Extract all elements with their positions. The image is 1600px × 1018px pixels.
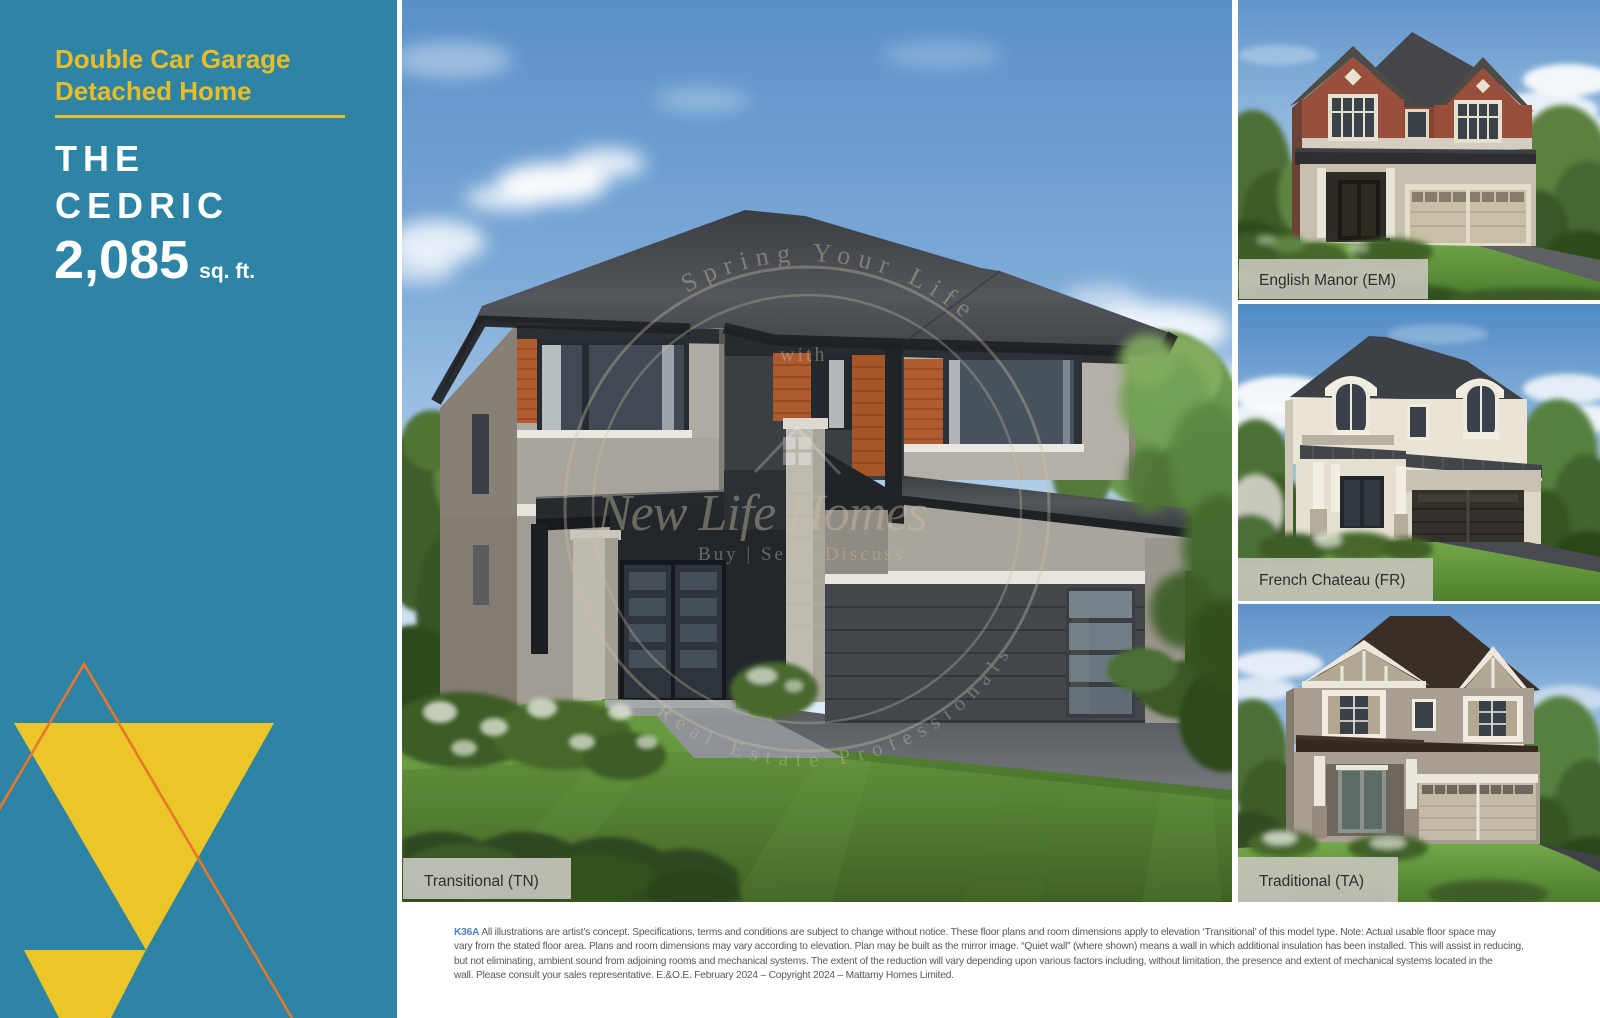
svg-text:Buy | Sell | Discuss: Buy | Sell | Discuss: [698, 544, 905, 565]
svg-text:New Life Homes: New Life Homes: [596, 485, 927, 542]
svg-text:with: with: [780, 344, 828, 366]
